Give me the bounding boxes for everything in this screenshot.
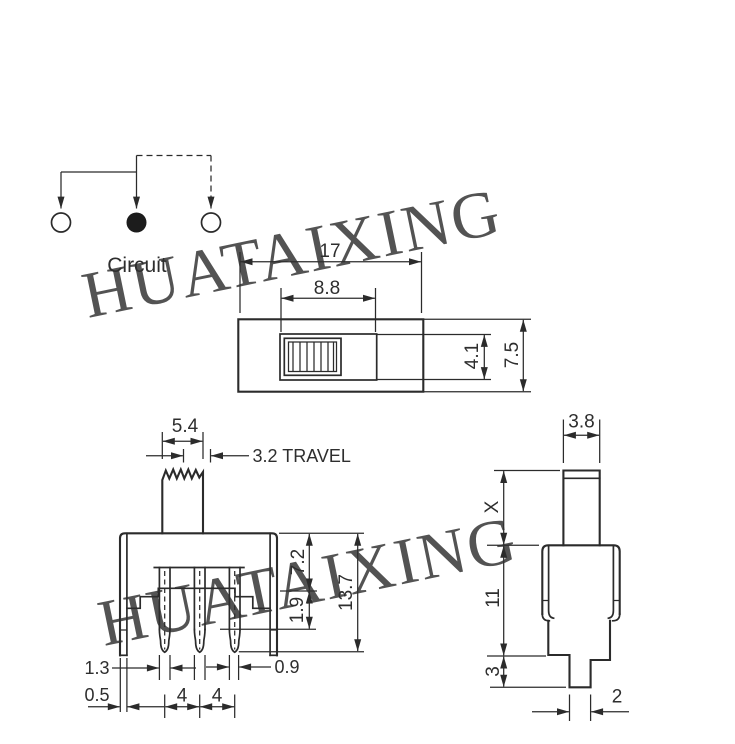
terminal-open-right — [202, 213, 221, 232]
side-body-outline — [542, 545, 619, 614]
dim-text-pitch-left: 4 — [177, 686, 188, 707]
dim-text-total-height: 7.5 — [502, 342, 523, 368]
dim-text-knob-depth: 3.8 — [568, 412, 594, 433]
dim-text-body-height: 11 — [483, 588, 504, 608]
slide-switch-drawing: Circuit 17 8.8 4.1 — [0, 0, 735, 744]
dim-text-pin-width: 1.3 — [84, 658, 109, 678]
watermark-text-lower: HUATAIXING — [92, 503, 523, 661]
top-view-knob-hatching — [293, 342, 334, 372]
terminal-common-filled — [127, 213, 147, 233]
side-knob-outline — [563, 471, 599, 546]
dim-text-knob-width: 5.4 — [172, 416, 199, 437]
technical-drawing-page: Circuit 17 8.8 4.1 — [0, 0, 735, 744]
dim-text-pin-tip-width: 0.9 — [274, 657, 299, 677]
front-knob-serrated — [162, 470, 203, 534]
side-lower-block-and-pin — [548, 621, 610, 688]
dim-text-slot-height: 4.1 — [462, 343, 483, 369]
side-right-inner-wall — [608, 545, 613, 618]
top-view-knob-inner — [289, 342, 337, 372]
side-left-inner-wall — [549, 545, 554, 618]
terminal-open-left — [52, 213, 71, 232]
dim-text-pin-length: 3 — [483, 666, 504, 677]
dim-text-pin-width: 2 — [612, 687, 623, 708]
watermark-layer: HUATAIXING HUATAIXING — [76, 175, 523, 661]
dim-text-pitch-right: 4 — [212, 686, 223, 707]
watermark-text-upper: HUATAIXING — [76, 175, 507, 333]
dim-text-travel: 3.2 TRAVEL — [253, 446, 351, 466]
dim-text-bracket-thickness: 0.5 — [84, 685, 109, 705]
